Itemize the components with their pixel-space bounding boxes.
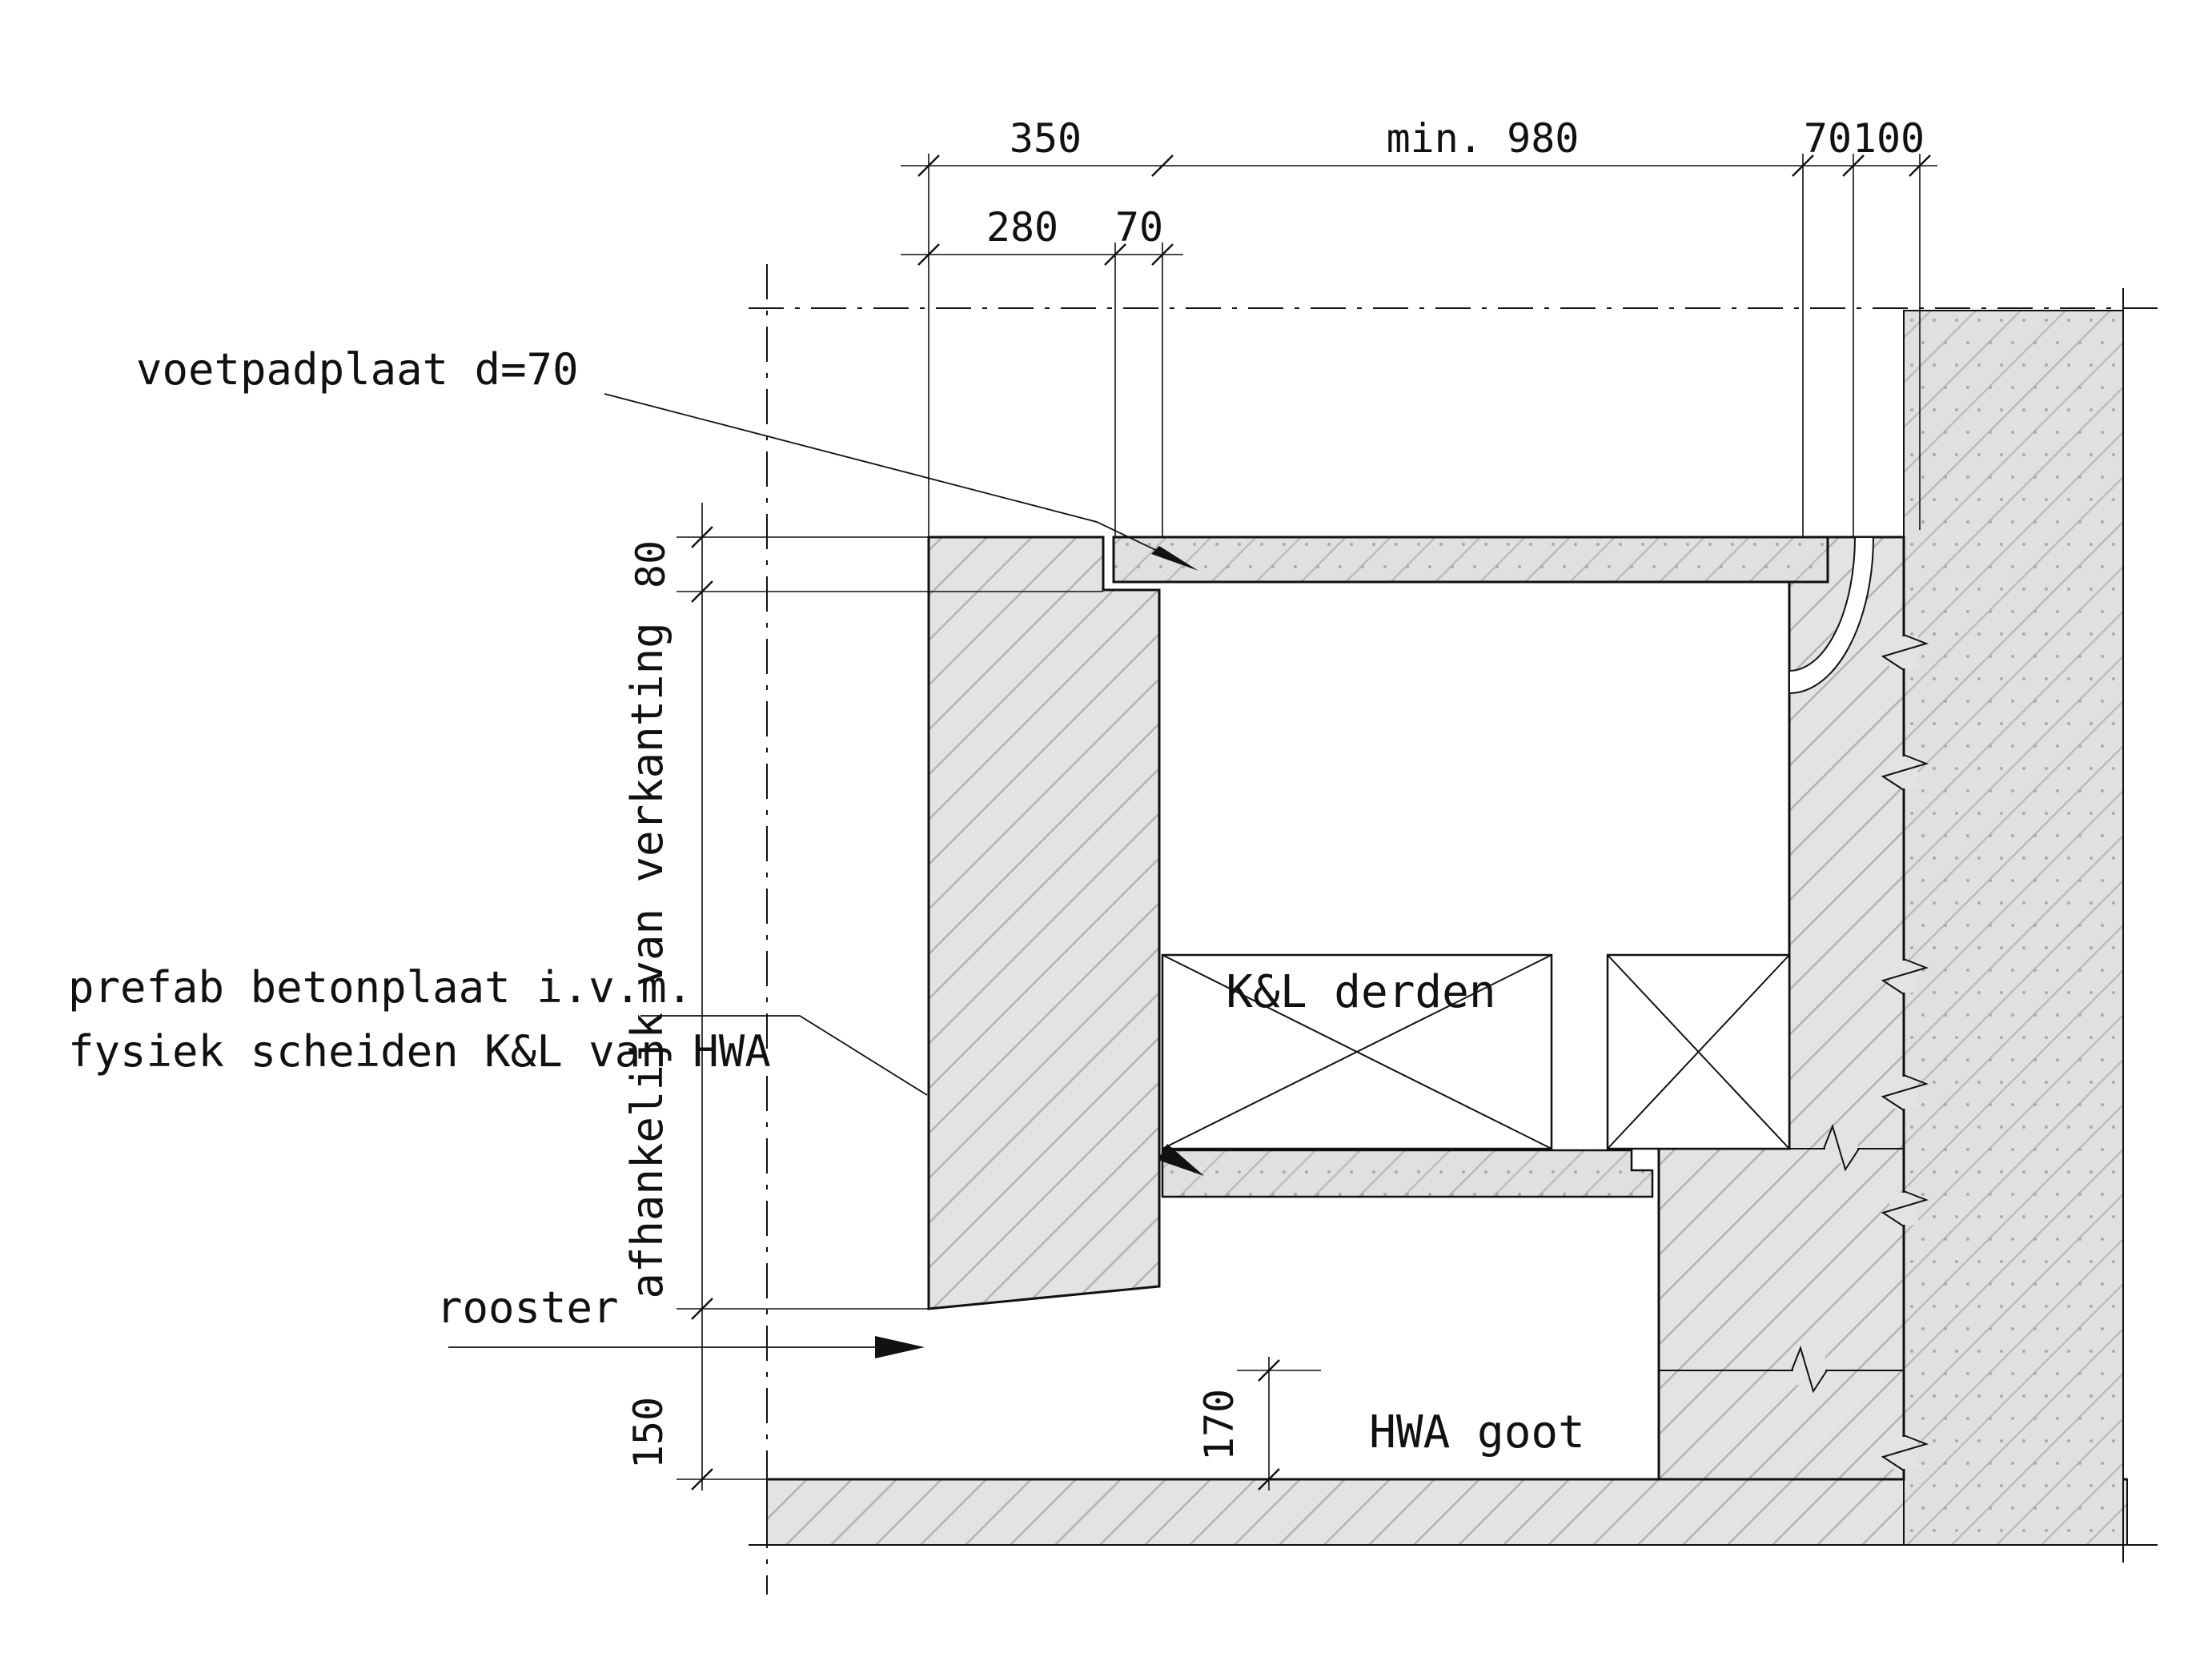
dim-70-mid-label: 70 (1115, 204, 1163, 251)
kl-derden-label: K&L derden (1226, 966, 1495, 1018)
dim-min980-label: min. 980 (1387, 115, 1580, 162)
footpath-slab (1114, 537, 1828, 582)
dim-100-label: 100 (1853, 115, 1925, 162)
rooster-arrowhead-icon (875, 1336, 925, 1358)
dim-170-label: 170 (1196, 1389, 1242, 1461)
rooster-label: rooster (436, 1282, 619, 1333)
concrete-masses (767, 311, 2127, 1545)
building-mass (1904, 311, 2123, 1545)
afhankelijk-label: afhankelijk van verkanting (622, 622, 672, 1298)
upstand-block (929, 537, 1159, 1309)
dim-70-top-label: 70 (1804, 115, 1852, 162)
prefab-plate (1162, 1150, 1652, 1197)
dim-80-label: 80 (628, 540, 674, 588)
hwa-goot-label: HWA goot (1369, 1406, 1585, 1458)
voetpadplaat-label: voetpadplaat d=70 (136, 344, 579, 395)
detail-section-svg: voetpadplaat d=70 350 min. 980 70 100 28… (0, 0, 2212, 1661)
prefab-label-line1: prefab betonplaat i.v.m. (68, 962, 693, 1013)
prefab-label-line2: fysiek scheiden K&L van HWA (68, 1026, 771, 1077)
dim-280-label: 280 (986, 204, 1058, 251)
construction-detail-drawing: voetpadplaat d=70 350 min. 980 70 100 28… (0, 0, 2212, 1661)
dim-150-label: 150 (625, 1397, 672, 1469)
dim-350-label: 350 (1010, 115, 1082, 162)
